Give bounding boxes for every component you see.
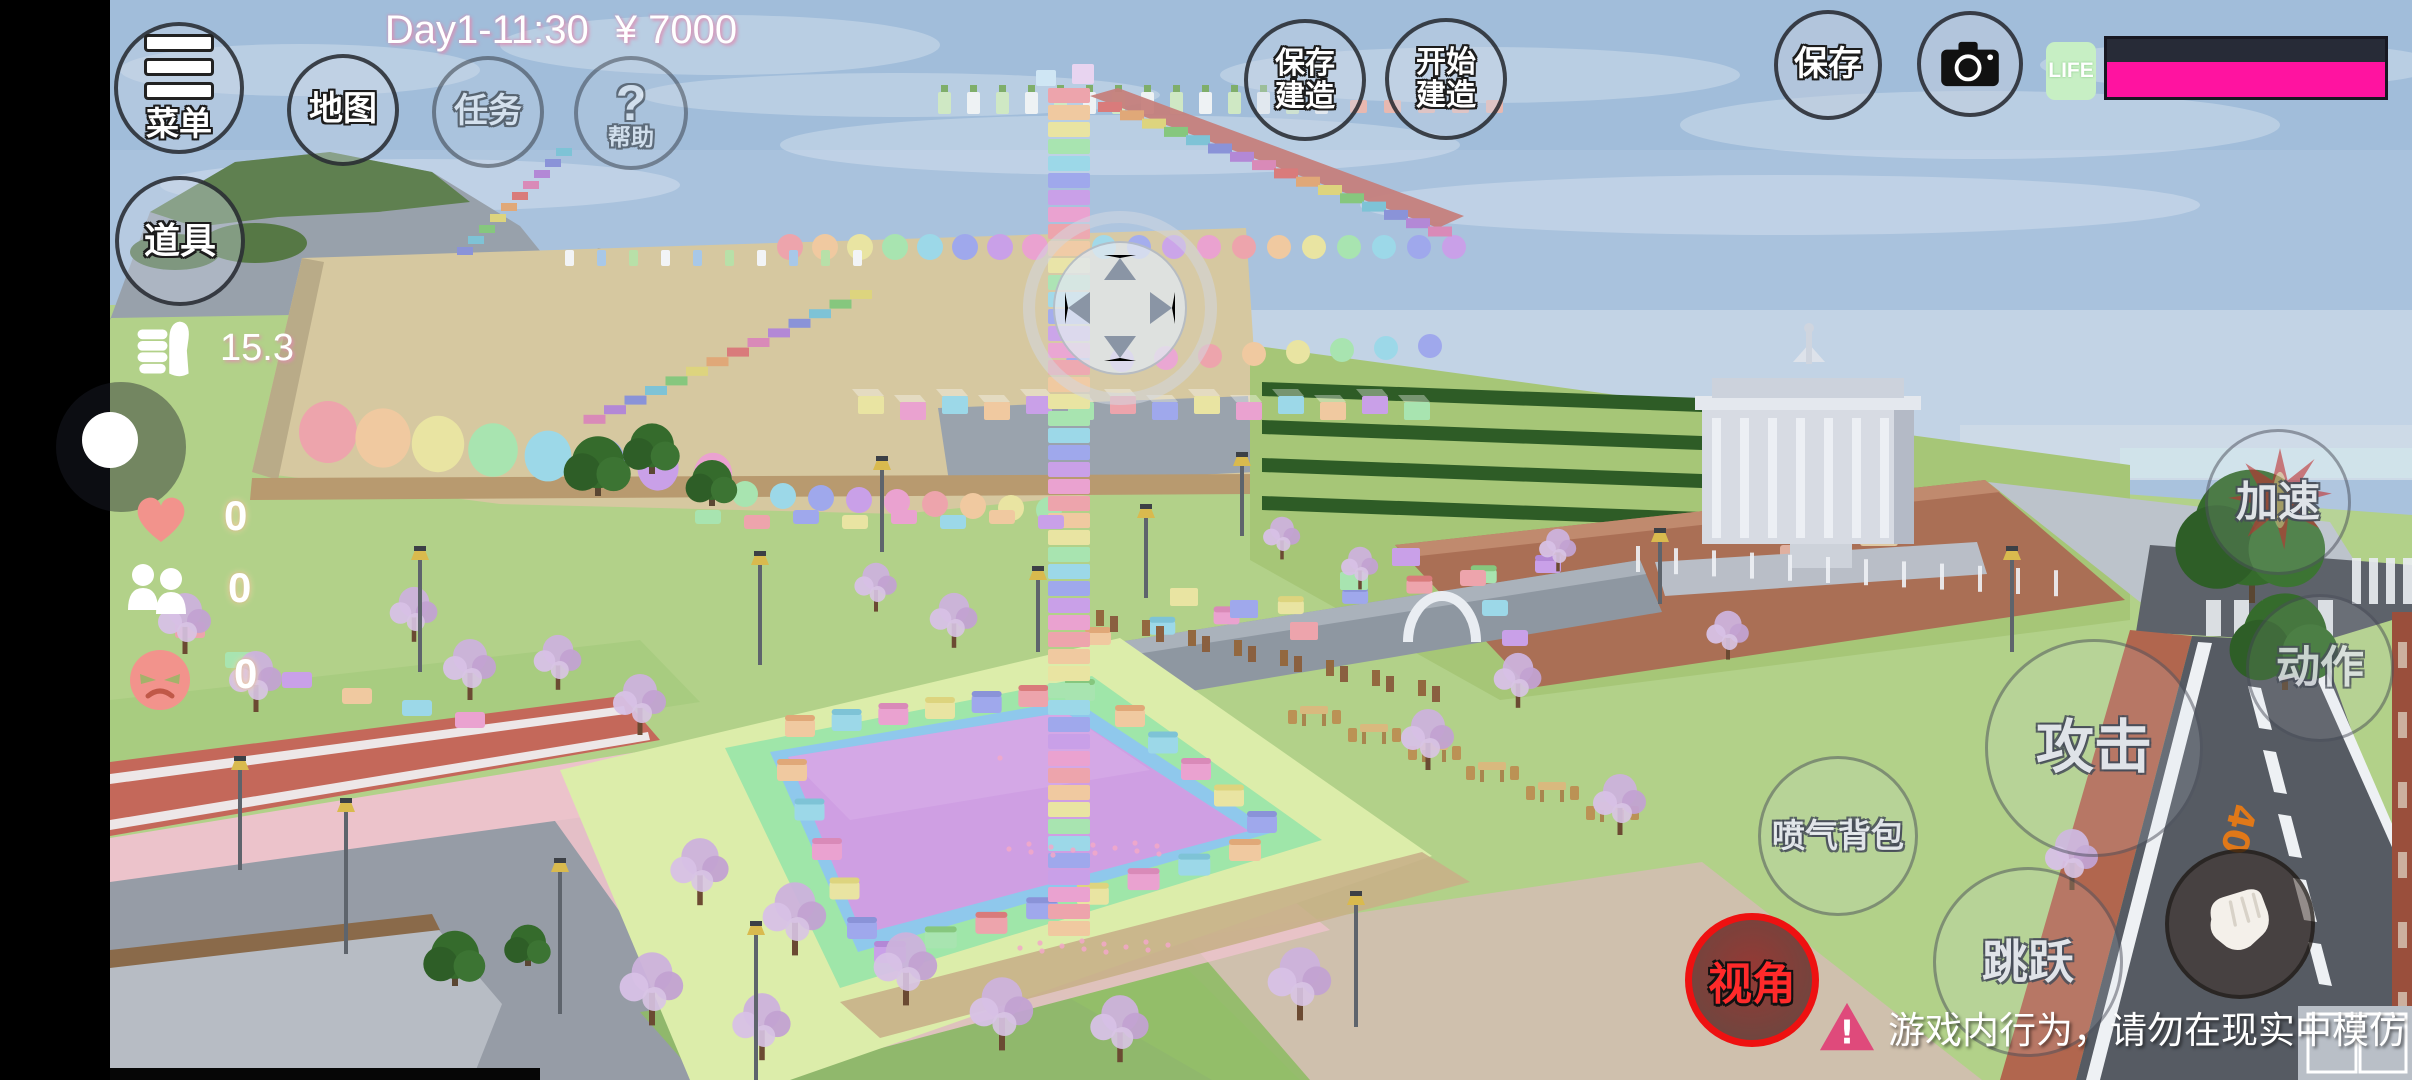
map-label: 地图 <box>309 91 377 128</box>
save-label: 保存 <box>1794 46 1862 83</box>
hamburger-icon <box>144 34 214 100</box>
two-people-icon <box>126 562 194 622</box>
life-label: LIFE <box>2046 42 2096 100</box>
map-button[interactable]: 地图 <box>287 54 399 166</box>
dpad-down-arrow[interactable] <box>1104 336 1136 361</box>
camera-dpad[interactable] <box>1053 241 1187 375</box>
life-label-text: LIFE <box>2048 59 2094 83</box>
start-build-button[interactable]: 开始 建造 <box>1385 18 1507 140</box>
game-screen: 40 Day1-11:30 ¥ 7000 菜单 地图 任务 ? 帮助 道具 <box>0 0 2412 1080</box>
menu-label: 菜单 <box>146 106 212 142</box>
thumbs-up-icon <box>134 316 208 380</box>
warning-text: 游戏内行为，请勿在现实中模仿 <box>1888 1000 2406 1054</box>
life-bar-background <box>2107 39 2385 62</box>
start-build-line2: 建造 <box>1416 79 1476 112</box>
life-bar-fill <box>2107 62 2385 97</box>
joystick-knob[interactable] <box>82 412 138 468</box>
people-count: 0 <box>228 564 251 612</box>
bottom-letterbox <box>110 1068 540 1080</box>
reputation-value: 15.3 <box>220 327 294 370</box>
anger-count: 0 <box>234 650 257 698</box>
help-button[interactable]: ? 帮助 <box>574 56 688 170</box>
menu-button[interactable]: 菜单 <box>114 22 244 154</box>
attack-button[interactable]: 攻击 <box>1985 639 2203 857</box>
jetpack-button[interactable]: 喷气背包 <box>1758 756 1918 916</box>
angry-face-icon <box>128 648 192 712</box>
task-button[interactable]: 任务 <box>432 56 544 168</box>
money-text: ¥ 7000 <box>615 8 737 53</box>
warning-exclamation: ! <box>1840 1012 1855 1051</box>
heart-icon <box>130 490 192 546</box>
camera-button[interactable] <box>1917 11 2023 117</box>
view-angle-label: 视角 <box>1708 948 1796 1012</box>
left-letterbox <box>0 0 110 1080</box>
dpad-up-arrow[interactable] <box>1104 255 1136 280</box>
reputation-counter: 15.3 <box>134 316 294 380</box>
save-build-line2: 建造 <box>1275 80 1335 113</box>
props-button[interactable]: 道具 <box>115 176 245 306</box>
camera-icon <box>1939 40 2001 88</box>
attack-label: 攻击 <box>2036 718 2152 779</box>
day-time-text: Day1-11:30 <box>385 8 589 53</box>
accelerate-button[interactable]: 加速 <box>2205 429 2351 575</box>
save-build-line1: 保存 <box>1275 47 1335 80</box>
heart-count: 0 <box>224 492 247 540</box>
warning-banner: ! 游戏内行为，请勿在现实中模仿 <box>1818 998 2406 1056</box>
life-bar <box>2104 36 2388 100</box>
jump-label: 跳跃 <box>1982 938 2074 986</box>
props-label: 道具 <box>144 221 216 261</box>
help-label: 帮助 <box>608 125 654 150</box>
question-mark-icon: ? <box>616 76 647 131</box>
task-label: 任务 <box>454 93 522 130</box>
action-label: 动作 <box>2276 645 2364 691</box>
jetpack-label: 喷气背包 <box>1772 819 1904 854</box>
accelerate-label: 加速 <box>2236 480 2320 524</box>
punch-button[interactable] <box>2165 849 2315 999</box>
view-angle-button[interactable]: 视角 <box>1685 913 1819 1047</box>
action-button[interactable]: 动作 <box>2246 594 2394 742</box>
status-bar: Day1-11:30 ¥ 7000 <box>300 8 822 53</box>
fist-icon <box>2192 881 2288 967</box>
save-button[interactable]: 保存 <box>1774 10 1882 120</box>
warning-triangle-icon: ! <box>1818 998 1876 1056</box>
dpad-left-arrow[interactable] <box>1065 292 1090 324</box>
save-build-button[interactable]: 保存 建造 <box>1244 19 1366 141</box>
start-build-line1: 开始 <box>1416 46 1476 79</box>
dpad-right-arrow[interactable] <box>1150 292 1175 324</box>
